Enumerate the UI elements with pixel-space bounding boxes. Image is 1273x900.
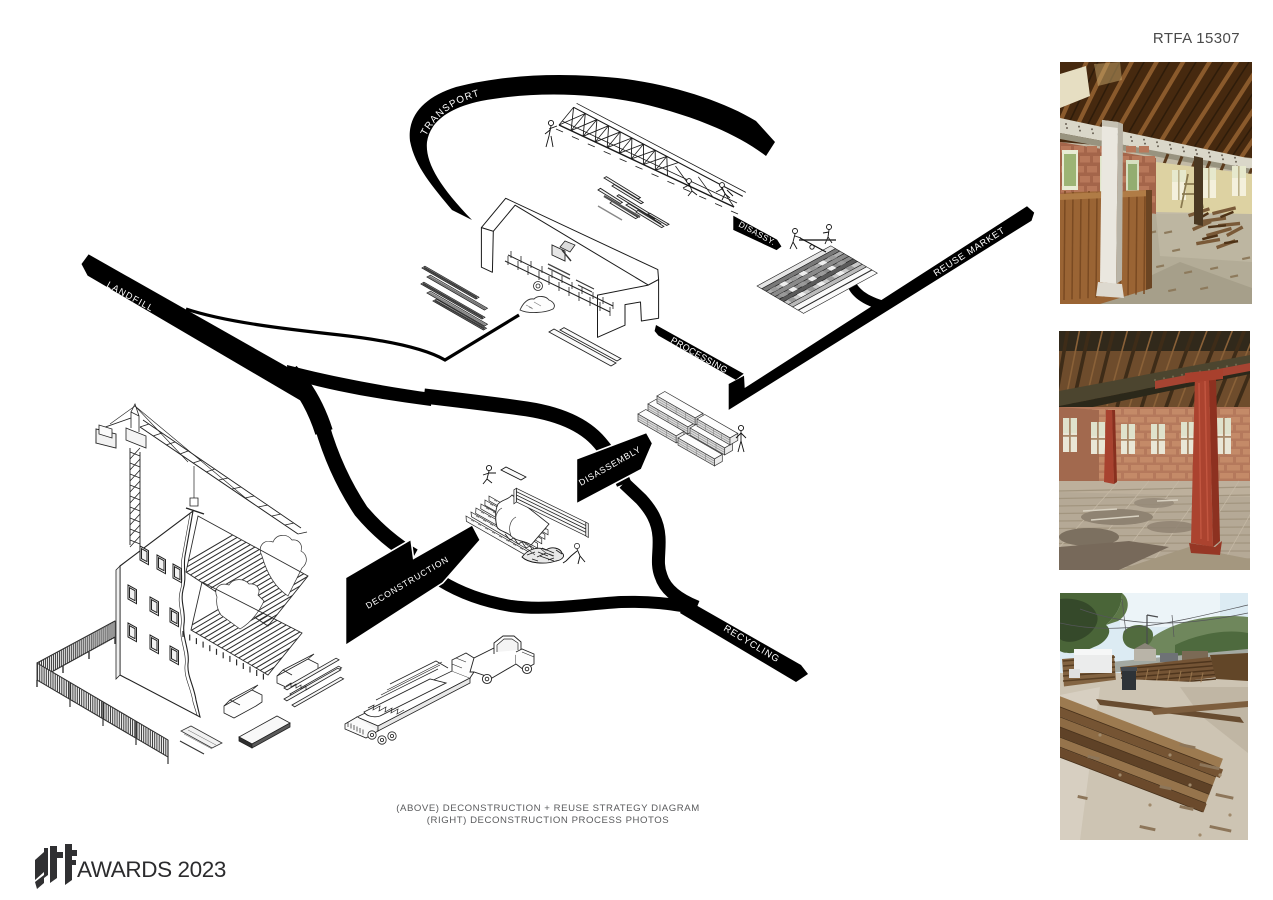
svg-text:RTFA 15307: RTFA 15307 (1153, 30, 1240, 47)
svg-text:(ABOVE) DECONSTRUCTION + REUSE: (ABOVE) DECONSTRUCTION + REUSE STRATEGY … (396, 803, 699, 814)
svg-text:AWARDS 2023: AWARDS 2023 (77, 857, 226, 882)
svg-text:(RIGHT) DECONSTRUCTION PROCESS: (RIGHT) DECONSTRUCTION PROCESS PHOTOS (427, 815, 669, 826)
